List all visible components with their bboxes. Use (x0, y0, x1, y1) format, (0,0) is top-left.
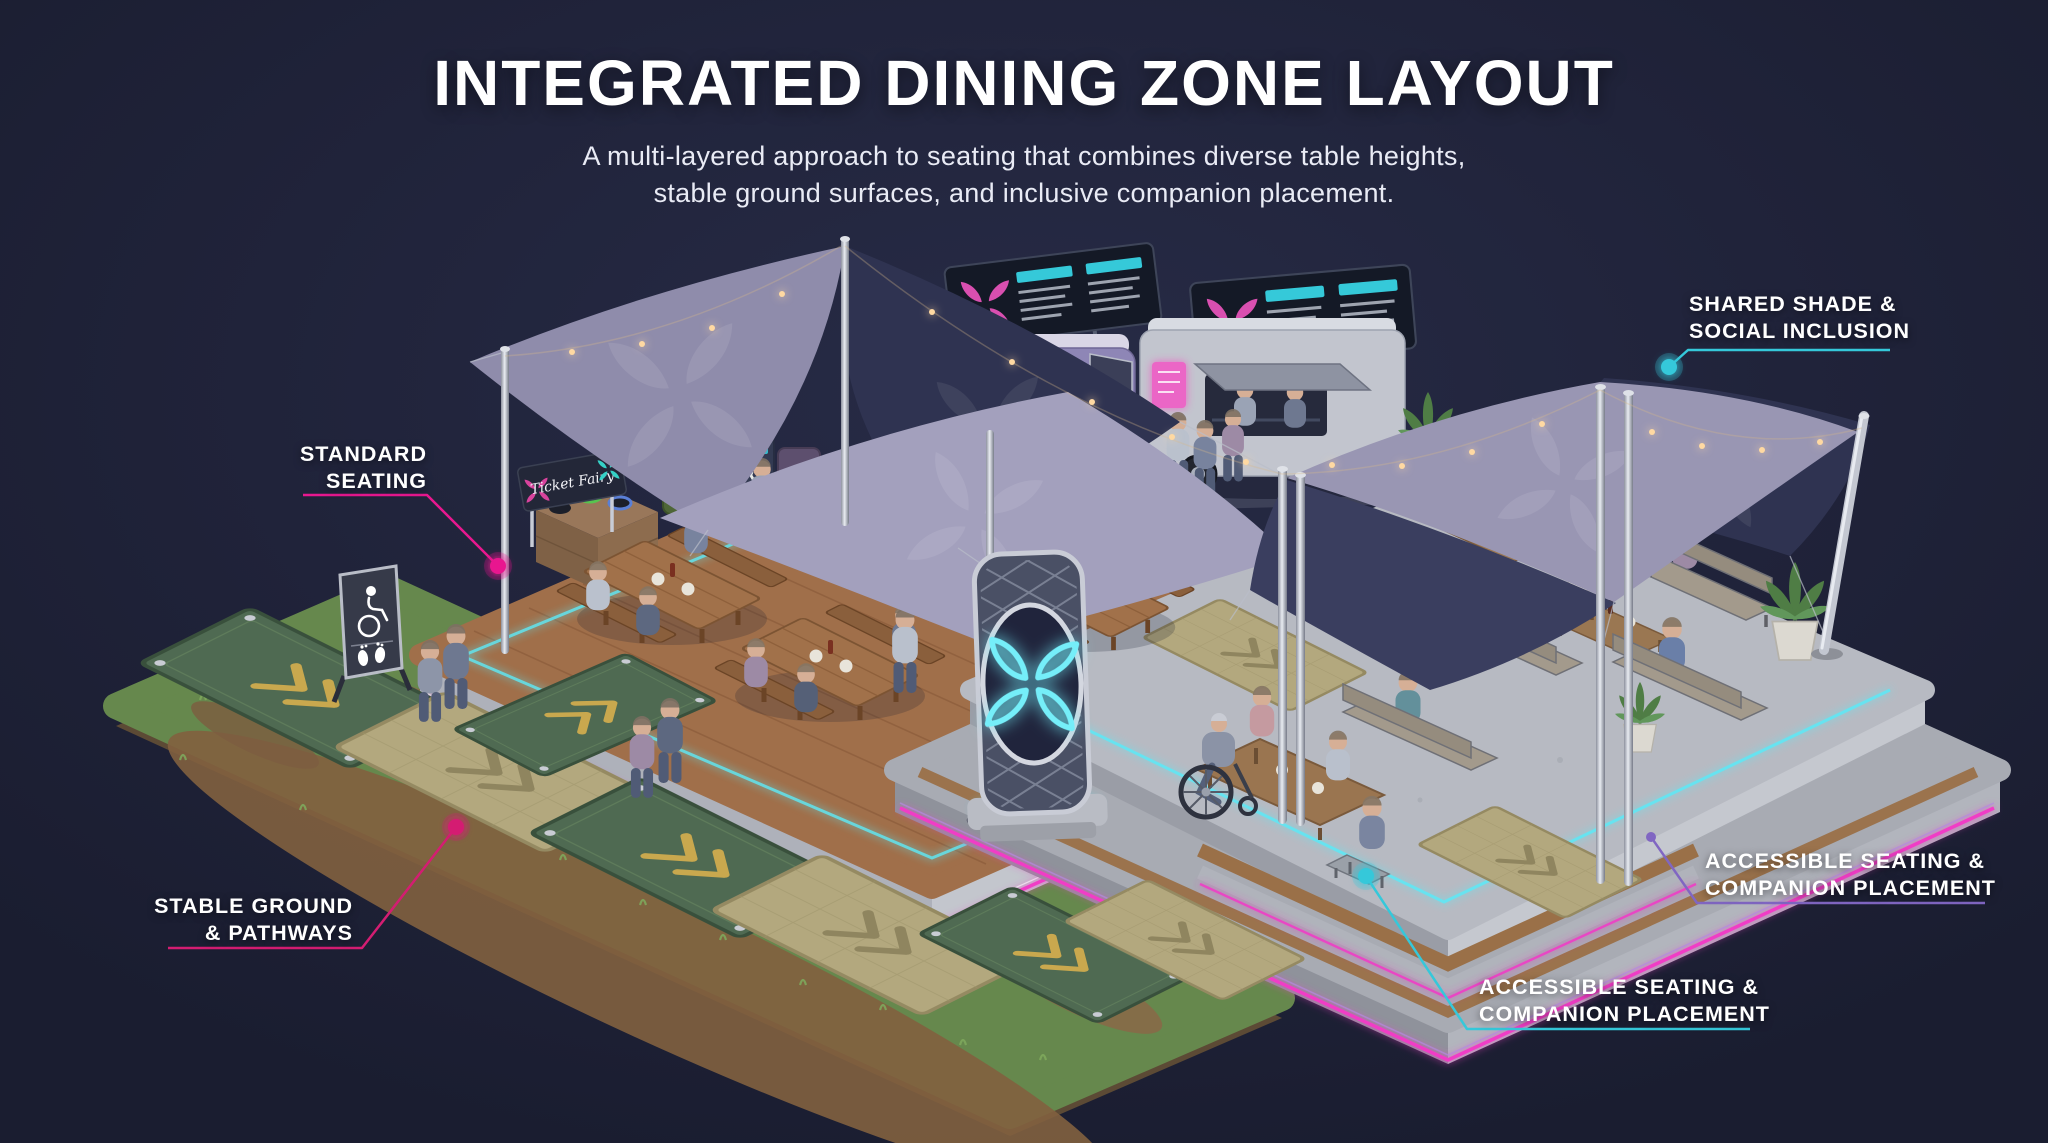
callout-stable-line2: & PATHWAYS (154, 920, 353, 947)
page-title: INTEGRATED DINING ZONE LAYOUT (0, 46, 2048, 120)
callout-acc-bottom-line1: ACCESSIBLE SEATING & (1479, 974, 1770, 1001)
callout-acc-right-line2: COMPANION PLACEMENT (1705, 875, 1996, 902)
callout-stable-line1: STABLE GROUND (154, 893, 353, 920)
callout-accessible-bottom: ACCESSIBLE SEATING & COMPANION PLACEMENT (1479, 974, 1770, 1028)
leader-shared-shade (1669, 350, 1890, 367)
infographic-poster: Ticket Fairy (0, 0, 2048, 1143)
callout-standard-seating: STANDARD SEATING (300, 441, 427, 495)
callout-acc-right-line1: ACCESSIBLE SEATING & (1705, 848, 1996, 875)
callout-acc-bottom-line2: COMPANION PLACEMENT (1479, 1001, 1770, 1028)
callout-shared-line1: SHARED SHADE & (1689, 291, 1910, 318)
subtitle-line-2: stable ground surfaces, and inclusive co… (0, 175, 2048, 212)
callout-stable-ground: STABLE GROUND & PATHWAYS (154, 893, 353, 947)
dot-accessible-right (1646, 832, 1656, 842)
callout-accessible-right: ACCESSIBLE SEATING & COMPANION PLACEMENT (1705, 848, 1996, 902)
dot-standard-seating (490, 558, 506, 574)
callout-standard-line2: SEATING (300, 468, 427, 495)
callout-shared-line2: SOCIAL INCLUSION (1689, 318, 1910, 345)
dot-shared-shade (1661, 359, 1677, 375)
callout-standard-line1: STANDARD (300, 441, 427, 468)
subtitle-line-1: A multi-layered approach to seating that… (0, 138, 2048, 175)
page-subtitle: A multi-layered approach to seating that… (0, 138, 2048, 212)
truck-neon-sign (1152, 362, 1186, 408)
callout-shared-shade: SHARED SHADE & SOCIAL INCLUSION (1689, 291, 1910, 345)
dot-stable-ground (448, 819, 464, 835)
leader-standard-seating (303, 495, 498, 566)
dot-accessible-bottom (1358, 868, 1374, 884)
